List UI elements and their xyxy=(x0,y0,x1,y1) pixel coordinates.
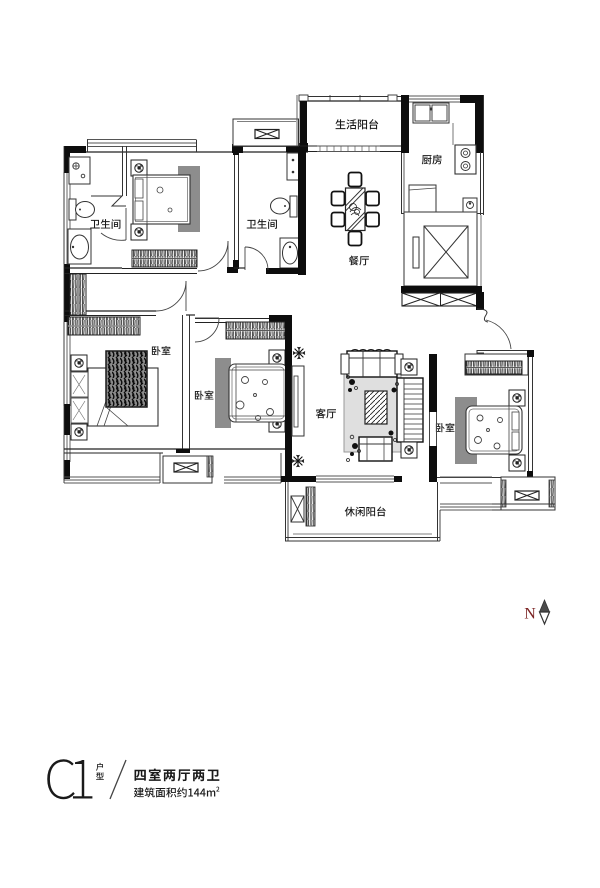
svg-text:N: N xyxy=(524,606,536,623)
